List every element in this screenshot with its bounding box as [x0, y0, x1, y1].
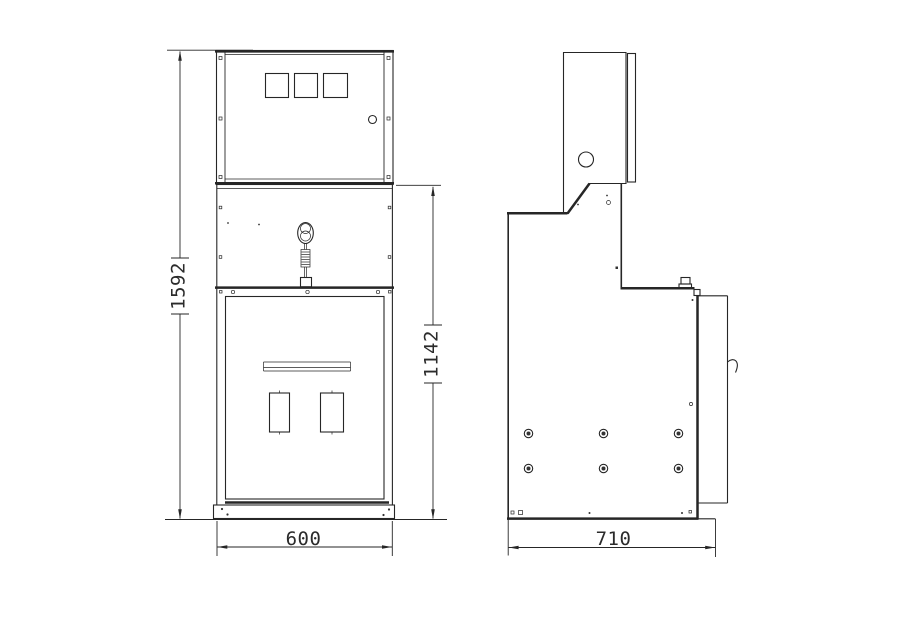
step-notch	[694, 290, 700, 296]
dimension-lower-section-height: 1142	[396, 185, 443, 519]
front-middle-operating-panel	[215, 184, 394, 505]
bolt	[674, 464, 682, 472]
meter-windows	[266, 74, 348, 98]
vent-slot	[264, 362, 351, 371]
side-hole-circle	[579, 152, 594, 167]
bolt	[524, 429, 532, 437]
front-lower-door	[225, 297, 389, 503]
front-upper-instrument-compartment	[215, 51, 394, 185]
step-bolt	[679, 278, 692, 289]
meter-window	[324, 74, 348, 98]
front-view	[214, 51, 395, 519]
dimension-front-width: 600	[217, 521, 392, 556]
front-base-channel	[214, 505, 395, 519]
bolt	[599, 464, 607, 472]
chamfer-edge	[568, 184, 590, 214]
meter-window	[295, 74, 318, 98]
drawing-canvas: 1592 1142 600 710	[0, 0, 898, 635]
side-upper-compartment	[564, 53, 636, 214]
bolt	[599, 429, 607, 437]
bolt	[674, 429, 682, 437]
side-view	[507, 53, 737, 520]
cable-hook	[728, 360, 738, 373]
frame-screws	[219, 57, 390, 179]
meter-window	[266, 74, 289, 98]
side-body-profile	[507, 184, 716, 520]
dimension-label-front-width: 600	[286, 528, 322, 550]
front-hinge-strip	[220, 290, 392, 293]
dimension-overall-height: 1592	[167, 50, 253, 519]
side-door-edge	[628, 54, 636, 183]
technical-drawing: 1592 1142 600 710	[0, 0, 898, 635]
bolt	[524, 464, 532, 472]
interlock-handle	[298, 223, 314, 287]
side-bottom-marks	[511, 511, 692, 515]
door-lock-circle	[369, 116, 377, 124]
dimension-label-overall-height: 1592	[168, 262, 190, 310]
door-window	[270, 393, 290, 432]
door-window	[321, 393, 344, 432]
side-panel-bolts	[524, 429, 682, 472]
dimension-label-side-depth: 710	[596, 528, 632, 550]
dimension-label-lower-section-height: 1142	[421, 330, 443, 378]
dimension-side-depth: 710	[508, 519, 715, 557]
